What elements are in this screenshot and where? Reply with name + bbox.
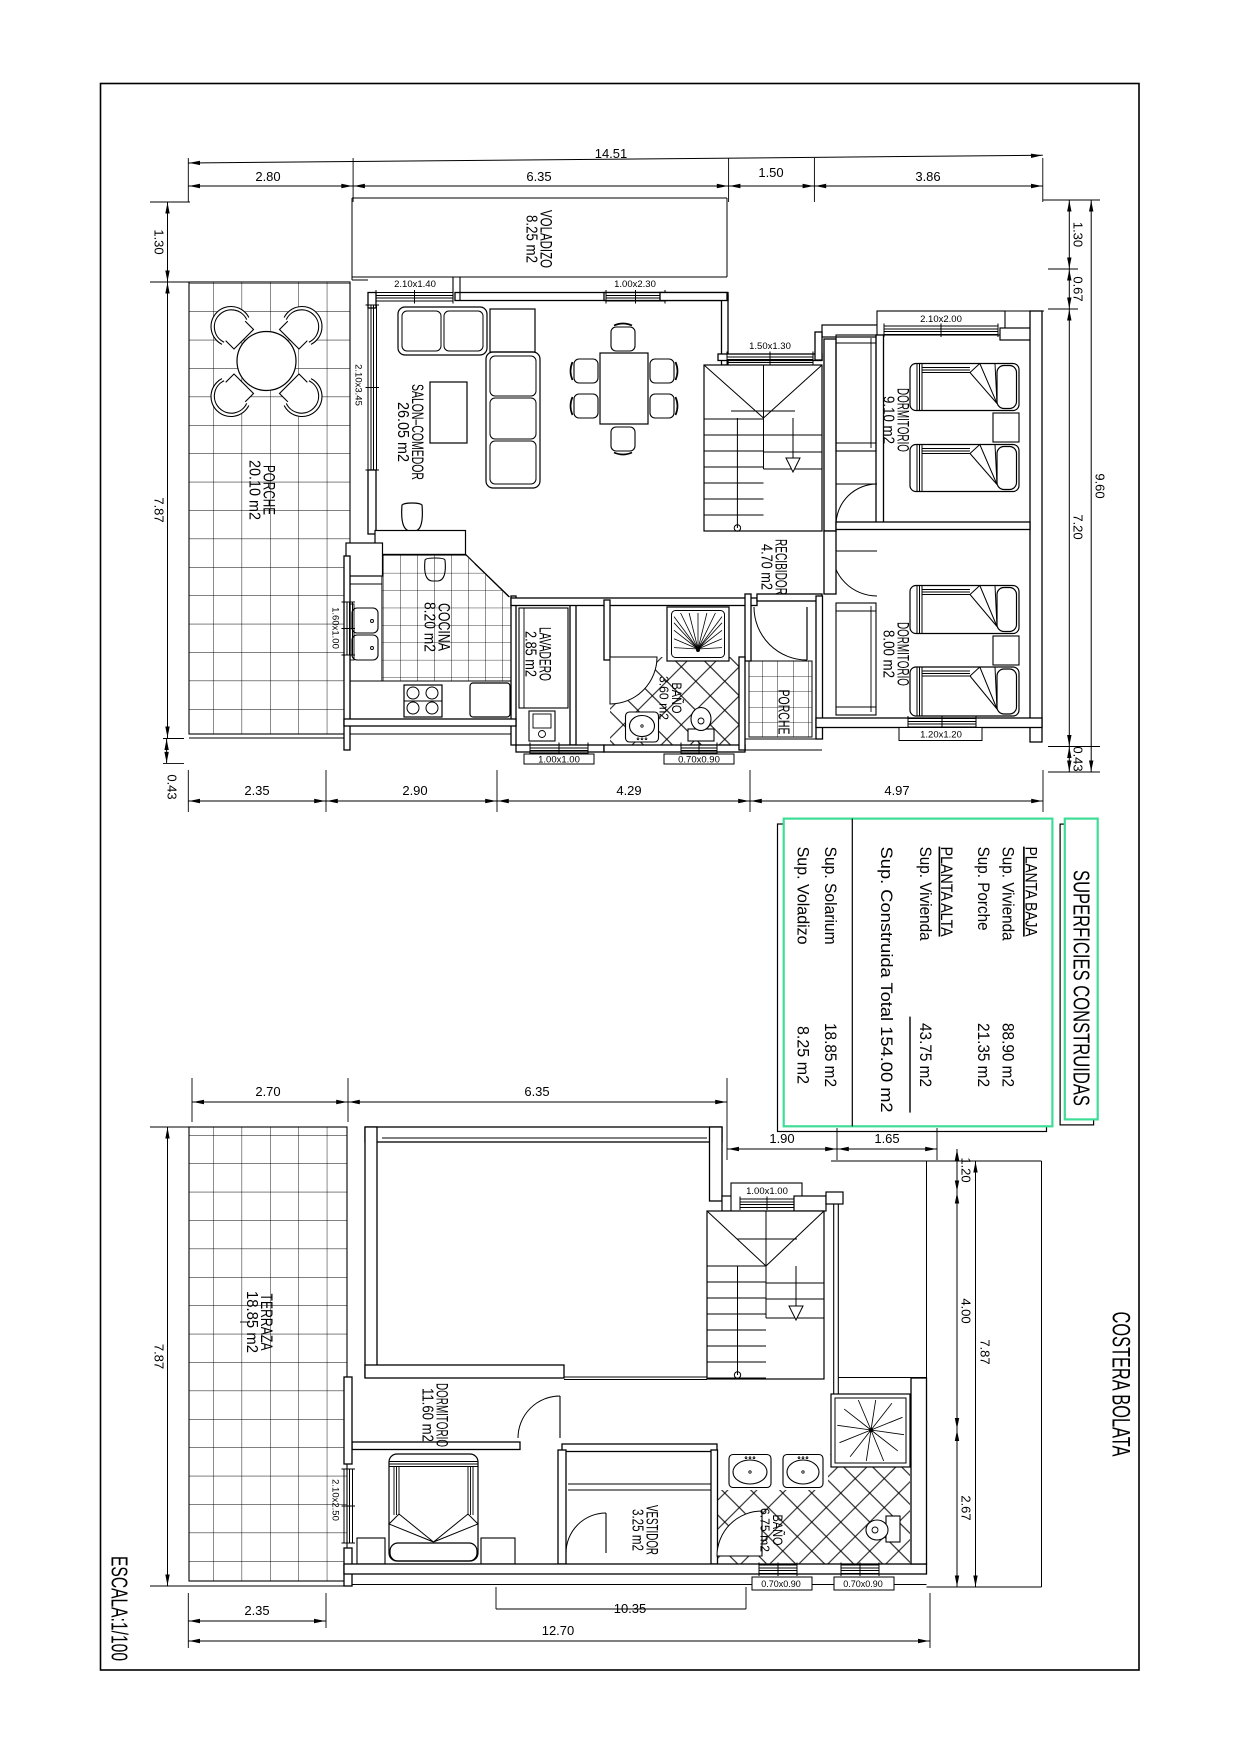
- svg-text:20.10 m2: 20.10 m2: [245, 460, 262, 520]
- svg-text:4.70 m2: 4.70 m2: [757, 544, 774, 590]
- svg-text:0.43: 0.43: [164, 774, 179, 799]
- svg-text:Sup. Vivienda: Sup. Vivienda: [916, 847, 934, 942]
- svg-text:8.25 m2: 8.25 m2: [794, 1026, 812, 1084]
- svg-text:3.25 m2: 3.25 m2: [628, 1509, 645, 1551]
- svg-text:Sup. Construida Total 154.0: Sup. Construida Total 154.00 m2: [877, 847, 895, 1113]
- svg-text:2.35: 2.35: [244, 783, 269, 798]
- svg-text:Sup. Porche: Sup. Porche: [974, 847, 992, 931]
- svg-text:4.97: 4.97: [884, 783, 909, 798]
- svg-text:PLANTA ALTA: PLANTA ALTA: [937, 847, 955, 937]
- svg-text:2.85 m2: 2.85 m2: [521, 631, 538, 677]
- svg-text:9.10 m2: 9.10 m2: [879, 396, 896, 444]
- svg-text:21.35 m2: 21.35 m2: [974, 1023, 992, 1087]
- svg-text:0.70x0.90: 0.70x0.90: [761, 1579, 801, 1589]
- svg-text:8.00 m2: 8.00 m2: [879, 630, 896, 678]
- svg-text:4.29: 4.29: [616, 783, 641, 798]
- svg-text:1.00x1.00: 1.00x1.00: [538, 755, 580, 766]
- svg-text:Sup. Solarium: Sup. Solarium: [821, 847, 839, 945]
- svg-text:9.60: 9.60: [1092, 473, 1107, 498]
- svg-text:1.60x1.00: 1.60x1.00: [330, 607, 341, 649]
- svg-text:2.67: 2.67: [958, 1495, 973, 1520]
- svg-text:18.85 m2: 18.85 m2: [821, 1023, 839, 1087]
- svg-text:2.70: 2.70: [255, 1084, 280, 1099]
- svg-text:43.75 m2: 43.75 m2: [916, 1023, 934, 1087]
- svg-text:3.86: 3.86: [915, 169, 940, 184]
- svg-text:2.10x2.00: 2.10x2.00: [920, 314, 962, 325]
- svg-text:2.90: 2.90: [402, 783, 427, 798]
- svg-text:4.00: 4.00: [958, 1298, 973, 1323]
- svg-text:Sup. Vivienda: Sup. Vivienda: [999, 847, 1017, 942]
- svg-text:8.20 m2: 8.20 m2: [420, 602, 437, 652]
- svg-text:1.00x2.30: 1.00x2.30: [614, 279, 656, 290]
- svg-text:PORCHE: PORCHE: [774, 690, 791, 735]
- svg-text:26.05 m2: 26.05 m2: [394, 402, 411, 462]
- svg-text:10.35: 10.35: [614, 1601, 647, 1616]
- svg-text:6.75 m2: 6.75 m2: [758, 1508, 772, 1552]
- svg-text:12.70: 12.70: [542, 1623, 575, 1638]
- svg-text:Sup. Voladizo: Sup. Voladizo: [794, 847, 812, 945]
- svg-text:8.25 m2: 8.25 m2: [522, 215, 539, 263]
- svg-text:1.30: 1.30: [151, 229, 166, 254]
- svg-text:1.00x1.00: 1.00x1.00: [746, 1186, 788, 1197]
- svg-text:7.87: 7.87: [977, 1339, 992, 1364]
- svg-text:2.80: 2.80: [255, 169, 280, 184]
- svg-text:PLANTA BAJA: PLANTA BAJA: [1022, 847, 1040, 937]
- svg-text:2.10x3.45: 2.10x3.45: [353, 364, 364, 406]
- svg-text:1.50: 1.50: [758, 165, 783, 180]
- svg-text:1.50x1.30: 1.50x1.30: [749, 341, 791, 352]
- svg-text:1.20x1.20: 1.20x1.20: [920, 730, 962, 741]
- svg-text:COSTERA BOLATA: COSTERA BOLATA: [1106, 1312, 1134, 1457]
- svg-text:1.90: 1.90: [769, 1131, 794, 1146]
- svg-text:88.90 m2: 88.90 m2: [999, 1023, 1017, 1087]
- svg-text:0.43: 0.43: [1070, 746, 1085, 771]
- svg-text:11.60 m2: 11.60 m2: [418, 1388, 435, 1442]
- svg-text:0.70x0.90: 0.70x0.90: [843, 1579, 883, 1589]
- svg-text:1.65: 1.65: [874, 1131, 899, 1146]
- svg-text:7.87: 7.87: [151, 497, 166, 522]
- svg-text:1.30: 1.30: [1070, 222, 1085, 247]
- svg-text:7.87: 7.87: [151, 1344, 166, 1369]
- svg-text:2.10x1.40: 2.10x1.40: [394, 279, 436, 290]
- svg-text:0.70x0.90: 0.70x0.90: [678, 755, 720, 766]
- svg-text:SUPERFICIES CONSTRUIDAS: SUPERFICIES CONSTRUIDAS: [1069, 870, 1095, 1106]
- svg-text:14.51: 14.51: [595, 146, 628, 161]
- svg-text:0.67: 0.67: [1070, 276, 1085, 301]
- svg-text:2.35: 2.35: [244, 1603, 269, 1618]
- svg-text:3.60 m2: 3.60 m2: [657, 676, 671, 720]
- svg-text:7.20: 7.20: [1070, 514, 1085, 539]
- svg-text:6.35: 6.35: [526, 169, 551, 184]
- svg-text:6.35: 6.35: [524, 1084, 549, 1099]
- svg-text:2.10x2.50: 2.10x2.50: [330, 1479, 341, 1521]
- svg-text:ESCALA:1/100: ESCALA:1/100: [106, 1556, 132, 1661]
